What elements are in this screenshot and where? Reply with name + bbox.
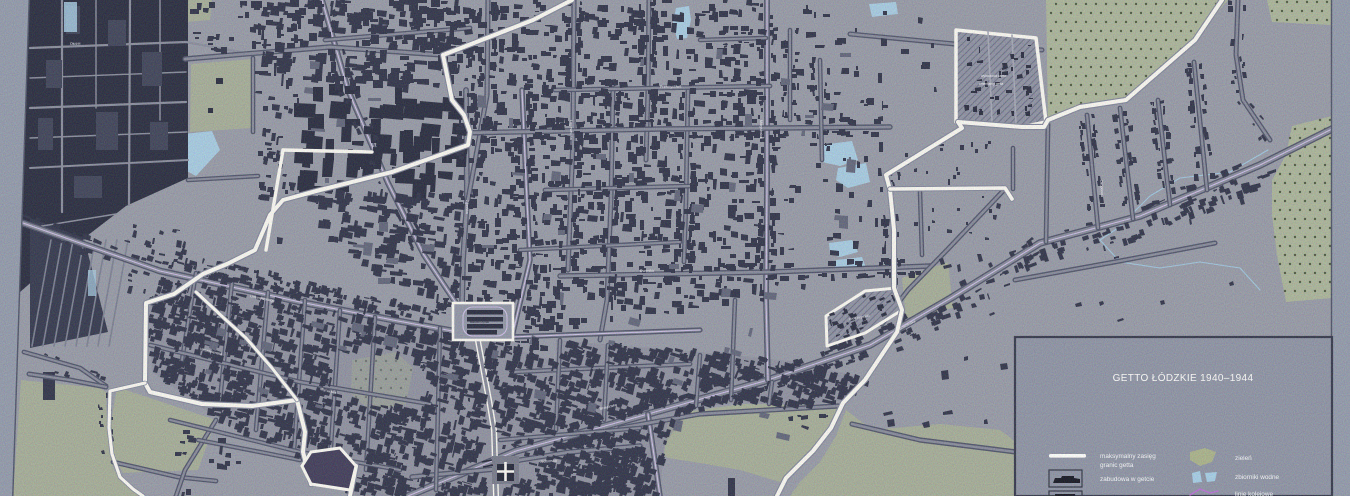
svg-text:cmentarny getta: cmentarny getta bbox=[979, 82, 1003, 86]
svg-text:granic getta: granic getta bbox=[1100, 462, 1134, 469]
svg-text:linie kolejowe: linie kolejowe bbox=[1235, 491, 1273, 496]
svg-text:Przemyslowa: Przemyslowa bbox=[660, 85, 681, 89]
svg-text:Dworska: Dworska bbox=[640, 269, 654, 273]
svg-text:Okrzei: Okrzei bbox=[70, 42, 81, 46]
svg-text:Balucki Rynek: Balucki Rynek bbox=[470, 320, 490, 324]
svg-text:GETTO ŁÓDZKIE 1940–1944: GETTO ŁÓDZKIE 1940–1944 bbox=[1113, 371, 1254, 384]
svg-text:zieleń: zieleń bbox=[1235, 455, 1252, 462]
svg-text:zbiorniki wodne: zbiorniki wodne bbox=[1235, 474, 1279, 481]
svg-text:Marysinska: Marysinska bbox=[759, 120, 763, 138]
svg-text:Lagiewnicka: Lagiewnicka bbox=[569, 120, 573, 140]
svg-text:wylaczona czesc: wylaczona czesc bbox=[981, 74, 1007, 78]
svg-text:maksymalny zasięg: maksymalny zasięg bbox=[1100, 453, 1156, 460]
svg-text:Zgierska: Zgierska bbox=[465, 200, 469, 214]
svg-text:zabudowa w getcie: zabudowa w getcie bbox=[1100, 476, 1155, 483]
